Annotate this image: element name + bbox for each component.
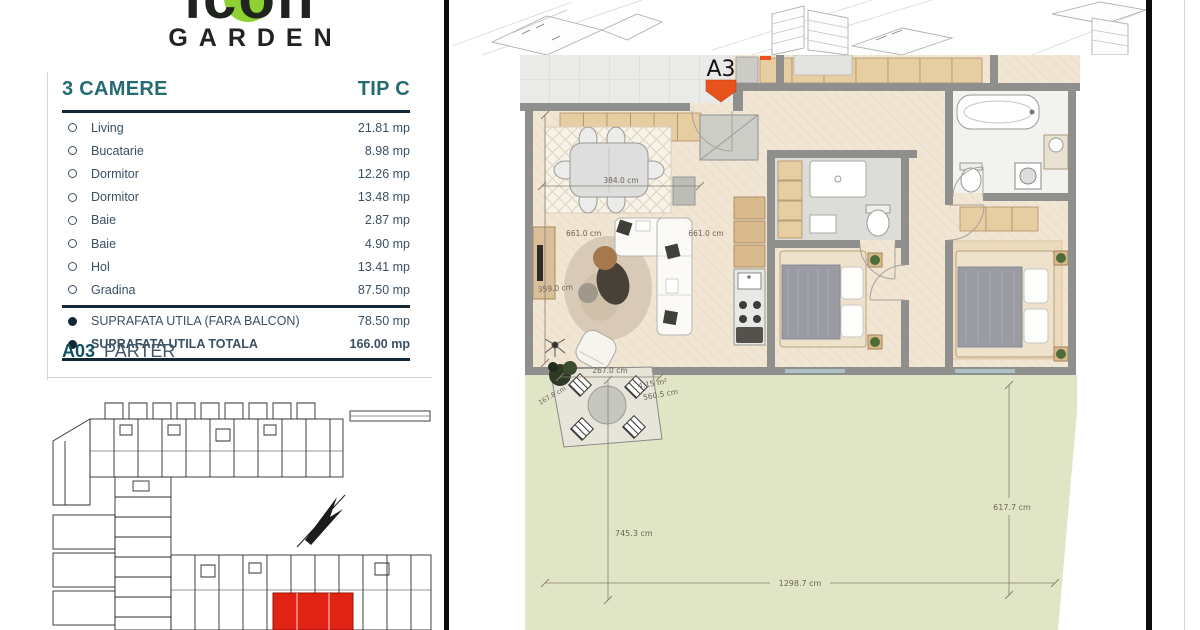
bullet-filled-icon xyxy=(68,317,77,326)
sink xyxy=(1049,138,1063,152)
dim-garden-right: 617.7 cm xyxy=(993,503,1031,512)
room-label: Living xyxy=(91,121,124,135)
toilet-icon xyxy=(866,205,890,236)
section-divider-hairline xyxy=(47,377,432,378)
sink xyxy=(810,215,836,233)
pillow xyxy=(1024,269,1048,303)
unit-level: PARTER xyxy=(104,341,175,361)
panel-divider xyxy=(444,0,449,630)
room-value: 13.48 mp xyxy=(358,190,410,204)
washing-machine-icon xyxy=(1015,163,1041,189)
spec-table: 3 CAMERE TIP C Living21.81 mp Bucatarie8… xyxy=(62,78,410,361)
dim-dining-width: 384.0 cm xyxy=(603,176,638,185)
bathroom-main xyxy=(953,91,1068,193)
dim-terrace-width: 267.0 cm xyxy=(592,366,627,375)
bullet-icon xyxy=(68,193,77,202)
bullet-icon xyxy=(68,169,77,178)
room-value: 4.90 mp xyxy=(365,237,410,251)
outdoor-table xyxy=(588,386,626,424)
unit-marker-label: A3 xyxy=(706,57,735,82)
render-strip xyxy=(452,0,1146,55)
room-label: Dormitor xyxy=(91,167,139,181)
right-border xyxy=(1146,0,1152,630)
shower xyxy=(810,161,866,197)
room-value: 87.50 mp xyxy=(358,283,410,297)
room-label: Baie xyxy=(91,237,116,251)
table-row: Baie4.90 mp xyxy=(62,232,410,255)
total-label: SUPRAFATA UTILA (FARA BALCON) xyxy=(91,314,300,328)
room-label: Hol xyxy=(91,260,110,274)
floor-plan: 384.0 cm 661.0 cm 661.0 cm 359.0 cm 267.… xyxy=(520,55,1080,630)
tv xyxy=(537,245,543,281)
room-label: Bucatarie xyxy=(91,144,144,158)
page: icon GARDEN 3 CAMERE TIP C Living21.81 m… xyxy=(0,0,1200,630)
neighbor-units xyxy=(736,55,998,83)
north-arrow-icon xyxy=(305,497,343,545)
room-label: Gradina xyxy=(91,283,135,297)
bullet-icon xyxy=(68,239,77,248)
table-row: Baie2.87 mp xyxy=(62,209,410,232)
spec-table-header: 3 CAMERE TIP C xyxy=(62,78,410,113)
bullet-icon xyxy=(68,285,77,294)
room-value: 12.26 mp xyxy=(358,167,410,181)
spec-title: 3 CAMERE xyxy=(62,78,168,101)
room-value: 2.87 mp xyxy=(365,213,410,227)
bullet-icon xyxy=(68,123,77,132)
site-plan xyxy=(45,385,435,630)
room-value: 21.81 mp xyxy=(358,121,410,135)
total-row: SUPRAFATA UTILA (FARA BALCON)78.50 mp xyxy=(62,310,410,333)
total-value: 166.00 mp xyxy=(350,337,410,351)
bullet-icon xyxy=(68,146,77,155)
brand-subtitle: GARDEN xyxy=(120,24,380,53)
unit-identifier: A03PARTER xyxy=(62,341,175,362)
dim-garden-left: 745.3 cm xyxy=(615,529,653,538)
bathtub-icon xyxy=(957,95,1039,129)
dim-kitchen-depth: 661.0 cm xyxy=(688,229,723,238)
spec-type-label: TIP C xyxy=(358,78,410,101)
room-value: 13.41 mp xyxy=(358,260,410,274)
table-row: Living21.81 mp xyxy=(62,116,410,139)
north-wing xyxy=(90,419,343,477)
table-left-hairline xyxy=(47,72,48,380)
pillow xyxy=(841,305,863,337)
west-wing xyxy=(115,477,171,630)
dim-garden-width: 1298.7 cm xyxy=(779,579,822,588)
bullet-icon xyxy=(68,262,77,271)
entry-closet xyxy=(700,115,758,160)
west-block xyxy=(53,419,90,505)
dim-living-depth: 661.0 cm xyxy=(566,229,601,238)
page-edge-hairline xyxy=(1184,0,1185,630)
oven xyxy=(736,327,763,343)
table-row: Dormitor12.26 mp xyxy=(62,162,410,185)
side-table xyxy=(673,177,695,205)
room-value: 8.98 mp xyxy=(365,144,410,158)
kitchen xyxy=(734,197,765,345)
table-row: Gradina87.50 mp xyxy=(62,278,410,301)
table-row: Bucatarie8.98 mp xyxy=(62,139,410,162)
pillow xyxy=(1024,309,1048,343)
table-row: Dormitor13.48 mp xyxy=(62,186,410,209)
unit-code: A03 xyxy=(62,341,95,361)
total-value: 78.50 mp xyxy=(358,314,410,328)
table-row: Hol13.41 mp xyxy=(62,255,410,278)
highlighted-unit xyxy=(273,593,353,630)
room-label: Dormitor xyxy=(91,190,139,204)
bathroom-small xyxy=(775,158,901,240)
building-block-icon xyxy=(492,16,602,55)
bullet-icon xyxy=(68,216,77,225)
balcony-teeth xyxy=(105,403,315,419)
pillow xyxy=(841,267,863,299)
room-label: Baie xyxy=(91,213,116,227)
room-rows: Living21.81 mp Bucatarie8.98 mp Dormitor… xyxy=(62,113,410,305)
